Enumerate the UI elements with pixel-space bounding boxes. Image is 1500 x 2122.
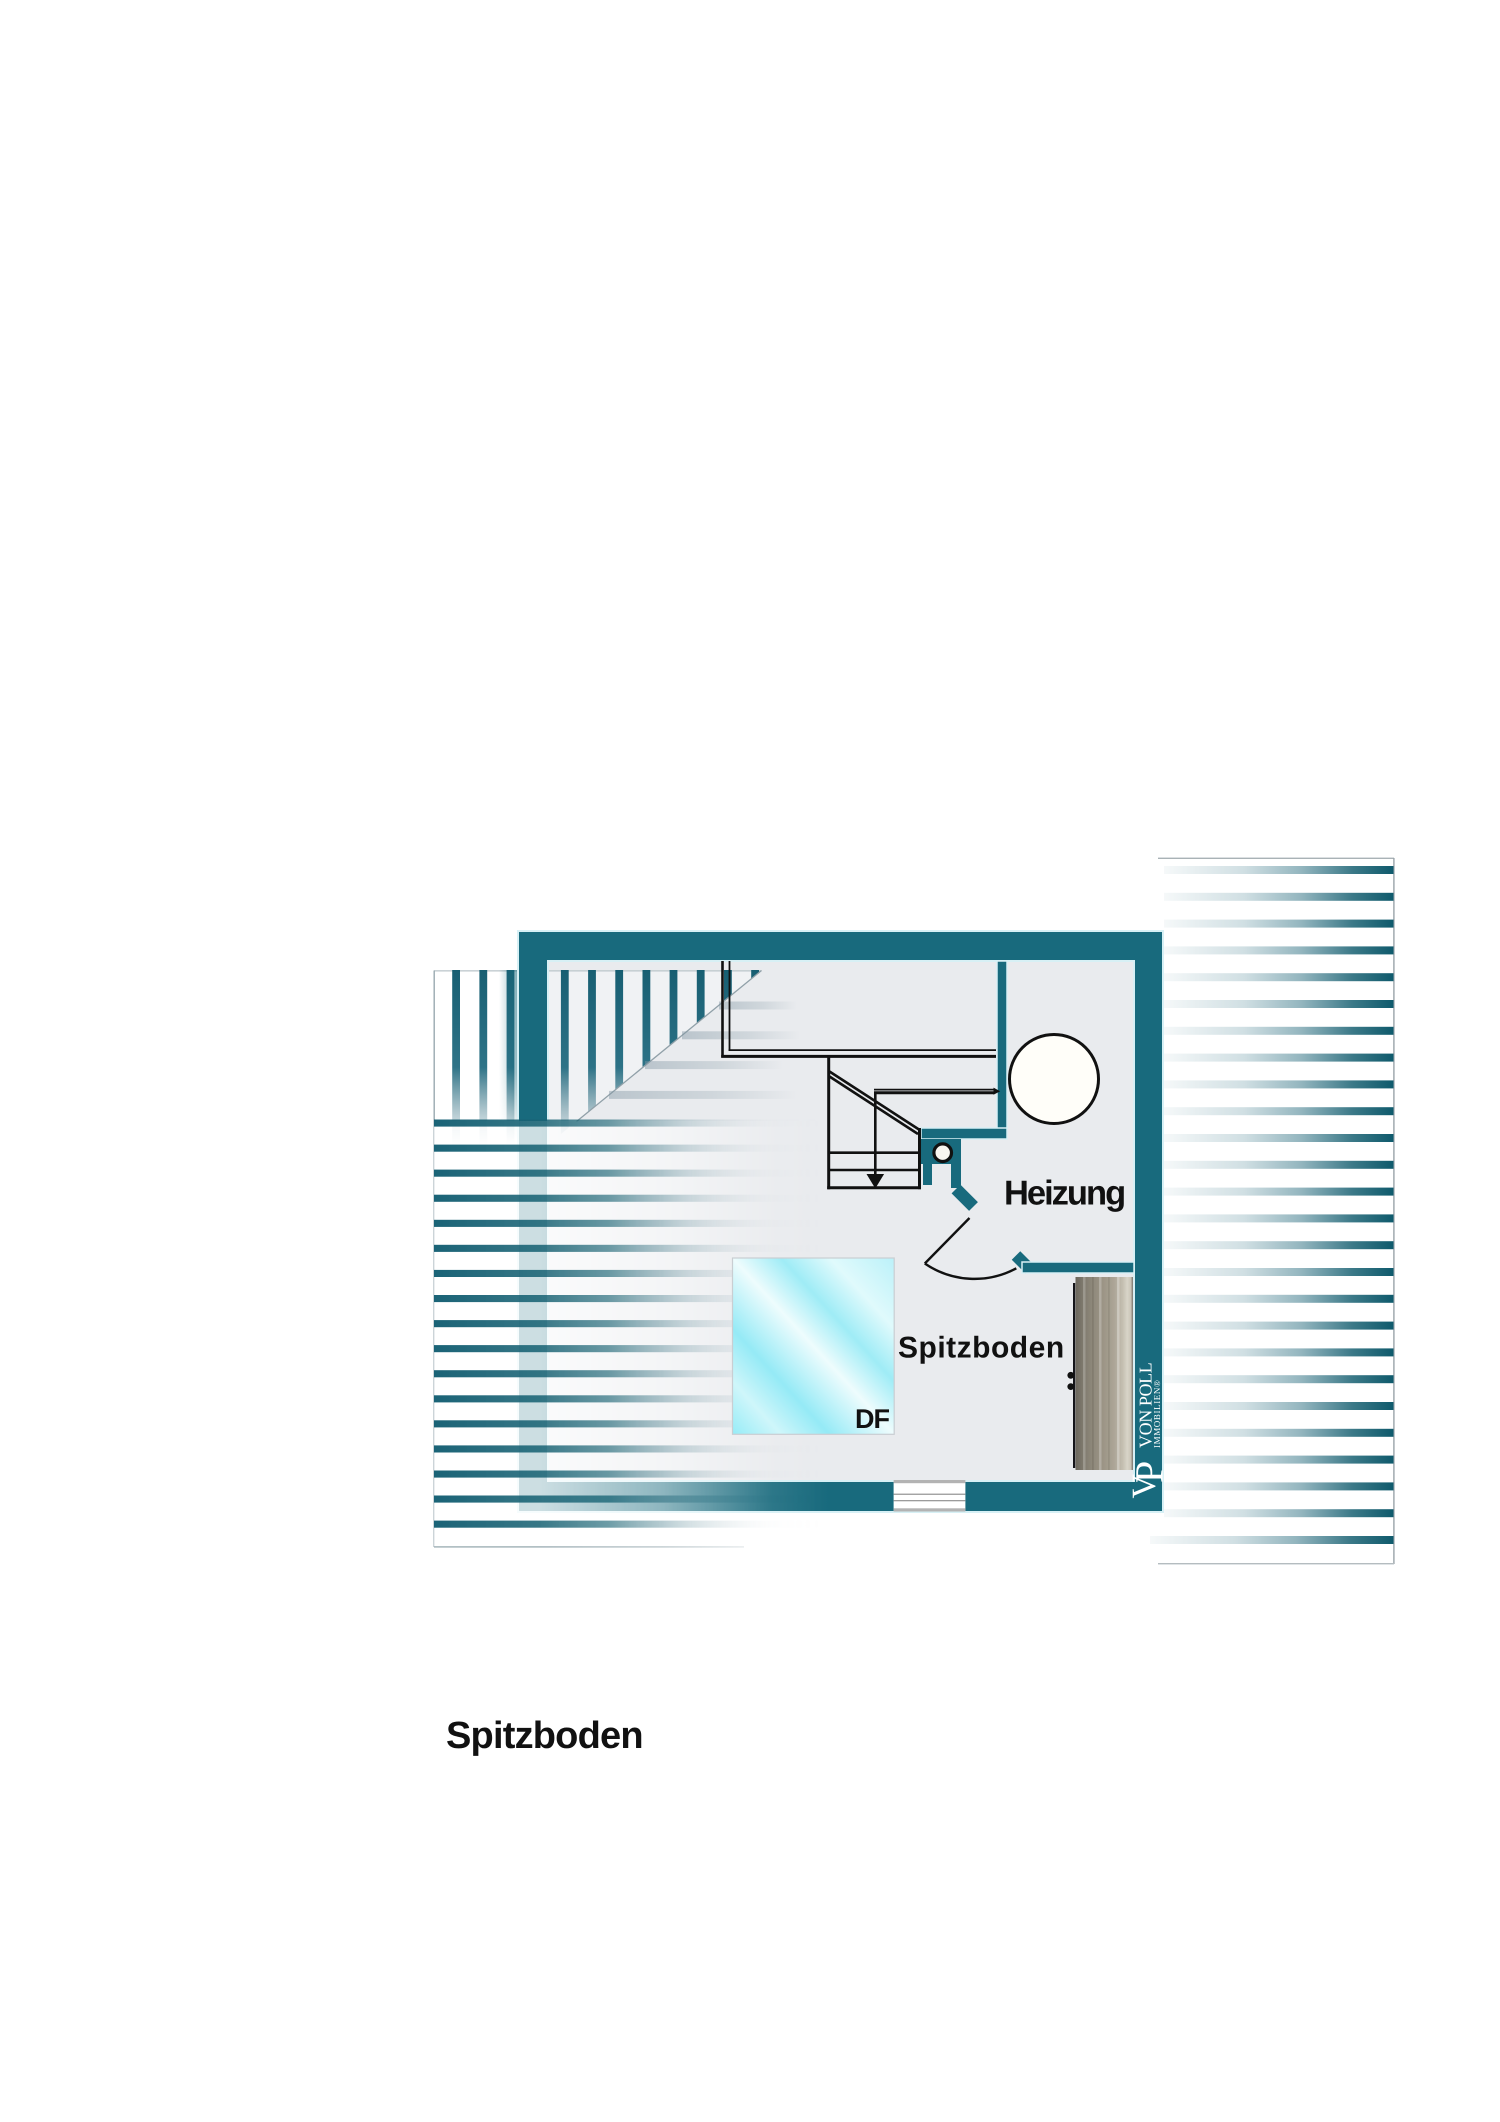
svg-text:Spitzboden: Spitzboden <box>446 1715 643 1757</box>
svg-text:DF: DF <box>855 1404 889 1434</box>
svg-text:P: P <box>1127 1461 1172 1483</box>
svg-text:Spitzboden: Spitzboden <box>898 1332 1065 1365</box>
svg-text:Heizung: Heizung <box>1004 1175 1124 1213</box>
svg-text:IMMOBILIEN®: IMMOBILIEN® <box>1152 1380 1162 1448</box>
